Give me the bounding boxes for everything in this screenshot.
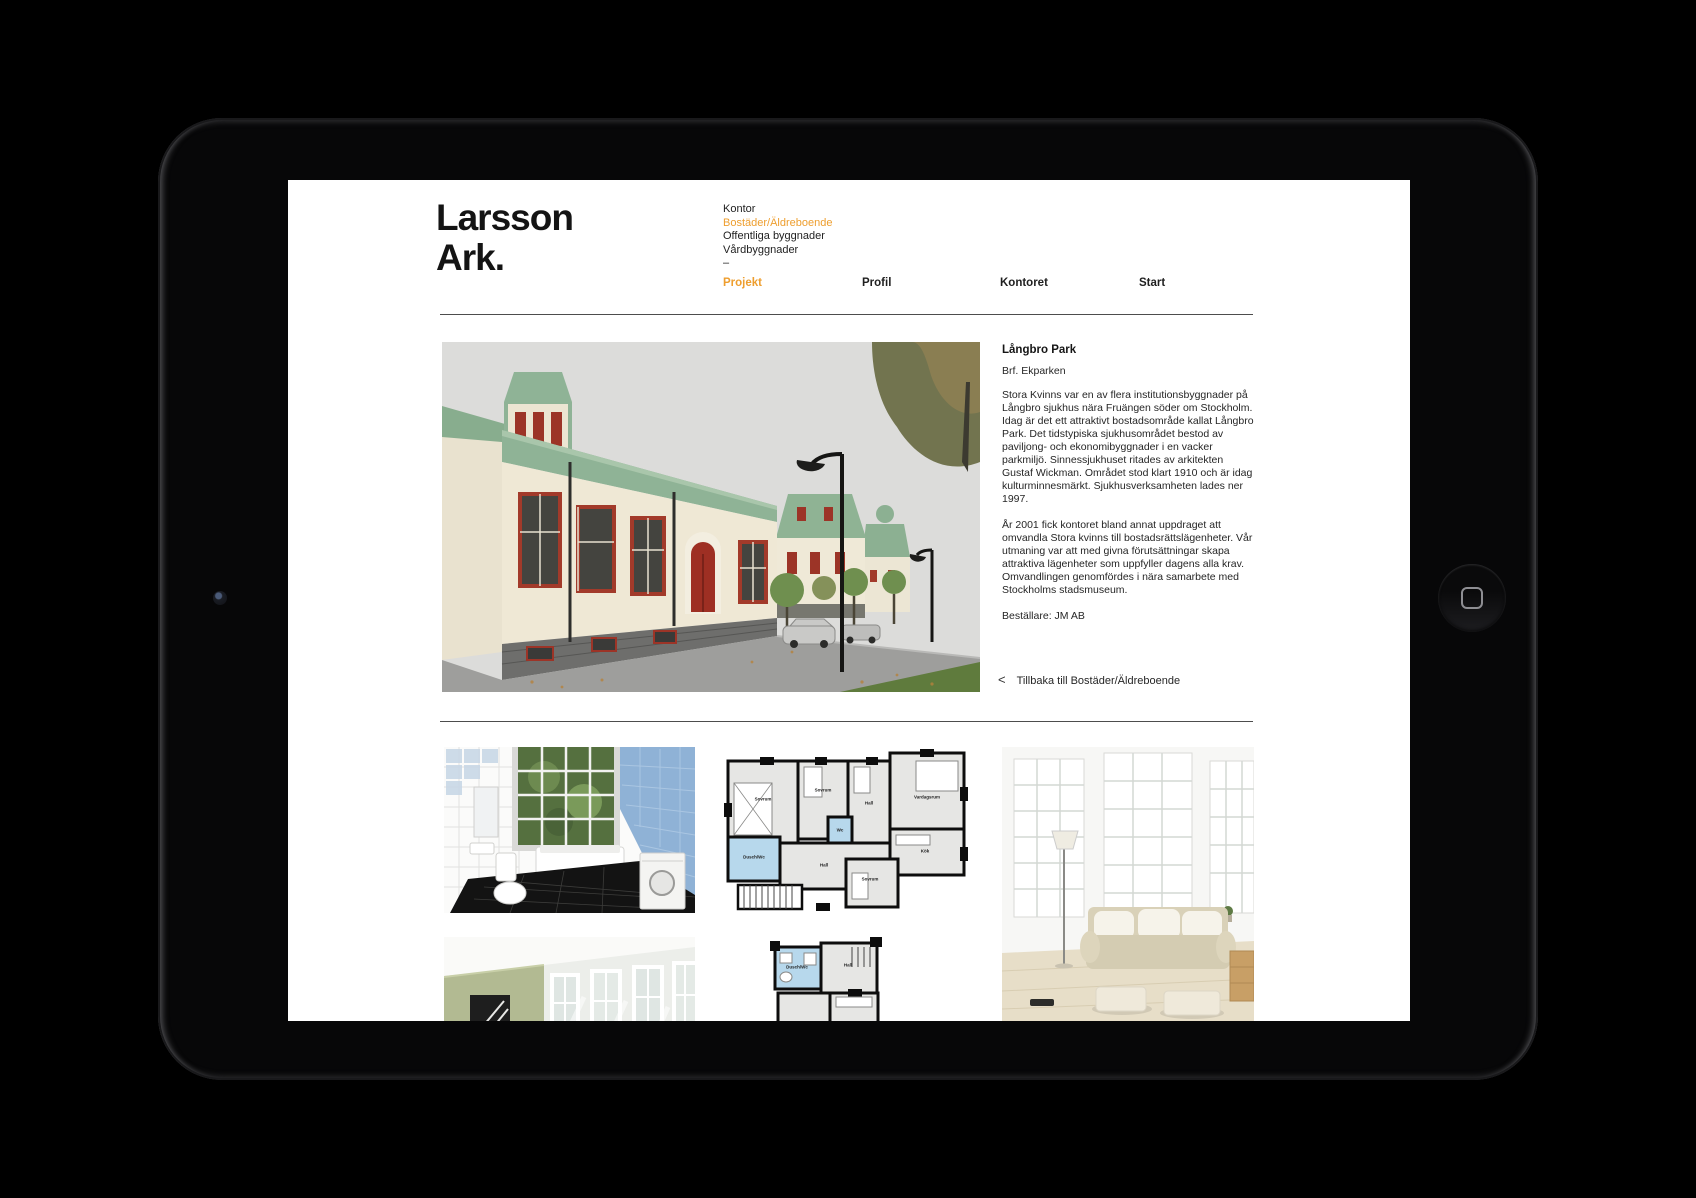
main-nav-projekt[interactable]: Projekt xyxy=(723,277,762,289)
divider-rule-bottom xyxy=(440,721,1253,722)
brand-line2: Ark. xyxy=(436,238,573,278)
chevron-left-icon: < xyxy=(998,672,1006,687)
main-nav-start[interactable]: Start xyxy=(1139,277,1165,289)
tablet-frame: LarssonArk. Kontor Bostäder/Äldreboende … xyxy=(158,118,1538,1080)
floorplan-room-label: Kök xyxy=(800,1021,809,1022)
project-client: Beställare: JM AB xyxy=(1002,610,1254,622)
project-title: Långbro Park xyxy=(1002,344,1254,356)
brand-logo[interactable]: LarssonArk. xyxy=(436,198,573,278)
floorplan-room-label: Sovrum xyxy=(862,877,879,882)
floorplan-room-label: Hall xyxy=(844,963,852,968)
floorplan-room-label: Vardagsrum xyxy=(914,795,940,800)
back-link[interactable]: <Tillbaka till Bostäder/Äldreboende xyxy=(998,672,1180,687)
floorplan-room-label: Dusch/Wc xyxy=(743,855,765,860)
category-nav: Kontor Bostäder/Äldreboende Offentliga b… xyxy=(723,203,983,271)
floorplan-room-label: Kök xyxy=(921,849,930,854)
main-nav-profil[interactable]: Profil xyxy=(862,277,891,289)
webpage-screen: LarssonArk. Kontor Bostäder/Äldreboende … xyxy=(288,180,1410,1021)
category-nav-item-offentliga-byggnader[interactable]: Offentliga byggnader xyxy=(723,230,983,244)
thumbnail-floorplan-2[interactable]: Dusch/Wc Hall Kök Klk xyxy=(720,937,970,1021)
front-camera-icon xyxy=(213,591,227,605)
thumbnail-floorplan-1[interactable]: Sovrum Sovrum Wc Hall Vardagsrum Dusch/W… xyxy=(720,747,970,913)
floorplan-room-label: Klk xyxy=(850,1021,857,1022)
home-button[interactable] xyxy=(1438,564,1506,632)
project-paragraph-2: År 2001 fick kontoret bland annat uppdra… xyxy=(1002,519,1254,597)
project-text-column: Långbro Park Brf. Ekparken Stora Kvinns … xyxy=(1002,344,1254,622)
brand-line1: Larsson xyxy=(436,198,573,238)
project-subtitle: Brf. Ekparken xyxy=(1002,365,1254,377)
back-link-label: Tillbaka till Bostäder/Äldreboende xyxy=(1017,675,1180,687)
main-project-photo xyxy=(442,342,980,692)
floorplan-room-label: Hall xyxy=(820,863,828,868)
divider-rule-top xyxy=(440,314,1253,315)
floorplan-room-label: Sovrum xyxy=(815,788,832,793)
scene-background: LarssonArk. Kontor Bostäder/Äldreboende … xyxy=(0,0,1696,1198)
category-nav-item-vardbyggnader[interactable]: Vårdbyggnader xyxy=(723,244,983,258)
category-nav-divider: – xyxy=(723,257,983,271)
thumbnail-bathroom-photo[interactable] xyxy=(444,747,695,913)
floorplan-room-label: Sovrum xyxy=(755,797,772,802)
category-nav-item-kontor[interactable]: Kontor xyxy=(723,203,983,217)
floorplan-room-label: Hall xyxy=(865,801,873,806)
thumbnail-livingroom-photo[interactable] xyxy=(1002,747,1254,1021)
thumbnail-greenroom-photo[interactable] xyxy=(444,937,695,1021)
category-nav-item-bostader-aldreboende[interactable]: Bostäder/Äldreboende xyxy=(723,217,983,231)
project-paragraph-1: Stora Kvinns var en av flera institution… xyxy=(1002,389,1254,506)
floorplan-room-label: Wc xyxy=(837,828,844,833)
home-button-square-icon xyxy=(1461,587,1483,609)
main-nav-kontoret[interactable]: Kontoret xyxy=(1000,277,1048,289)
floorplan-room-label: Dusch/Wc xyxy=(786,965,808,970)
